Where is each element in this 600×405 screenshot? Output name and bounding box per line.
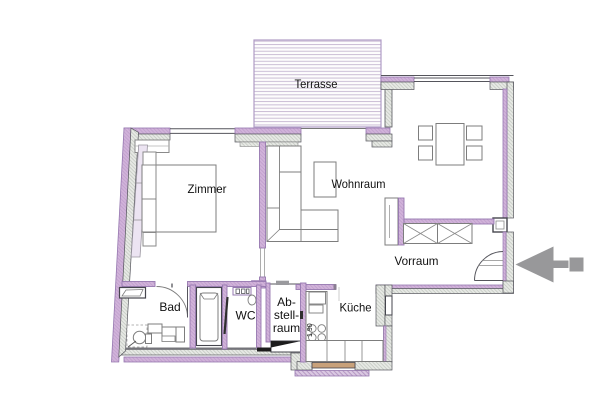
svg-text:Küche: Küche — [340, 301, 372, 315]
svg-text:Zimmer: Zimmer — [188, 182, 227, 196]
svg-text:Bad: Bad — [159, 300, 180, 314]
svg-text:Vorraum: Vorraum — [395, 254, 439, 268]
svg-text:1,90: 1,90 — [307, 323, 314, 337]
svg-text:Wohnraum: Wohnraum — [332, 177, 386, 191]
svg-text:Ab-: Ab- — [277, 295, 296, 309]
svg-text:WC: WC — [236, 309, 256, 323]
svg-text:Terrasse: Terrasse — [295, 77, 338, 91]
svg-text:stell-: stell- — [274, 308, 299, 322]
svg-text:raum: raum — [273, 321, 300, 335]
